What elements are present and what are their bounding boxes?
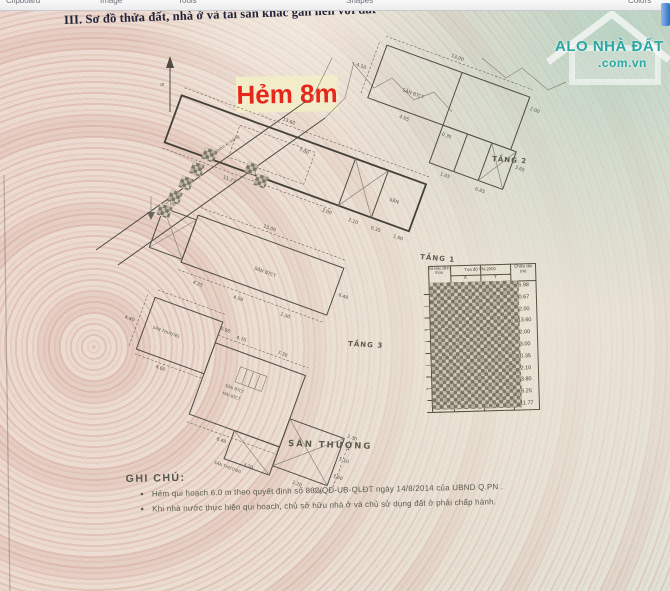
dimension-label: 3.65 <box>514 164 526 173</box>
censored-block <box>178 175 193 190</box>
length-value: 0.35 <box>512 351 538 364</box>
col-header-length-line2: (m) <box>510 269 536 275</box>
notes-section: GHI CHÚ: ● Hẻm qui hoạch 6.0 m theo quyế… <box>126 463 607 515</box>
censored-block <box>201 147 217 163</box>
dimension-label: 4.40 <box>124 314 136 323</box>
app-toolbar: Clipboard Image Tools Shapes Colors <box>0 0 670 11</box>
room-label: SÂN THƯỢNG <box>152 325 180 339</box>
tang2-label: TẦNG 2 <box>492 153 528 165</box>
censored-block <box>253 173 268 188</box>
dimension-label: 4.05 <box>398 114 410 123</box>
room-label: MÁI BTCT <box>222 390 242 401</box>
scan-canvas[interactable]: III. Sơ đồ thửa đất, nhà ở và tài sản kh… <box>0 10 670 591</box>
section-title: III. Sơ đồ thửa đất, nhà ở và tài sản kh… <box>64 10 377 28</box>
length-value: 3.00 <box>512 339 538 352</box>
bullet-icon: ● <box>140 505 144 515</box>
censored-coordinates-block <box>429 280 522 409</box>
dimension-label: 5.10 <box>338 456 350 465</box>
scan-edge-line <box>4 175 10 591</box>
dimension-label: 4.70 <box>235 335 247 344</box>
room-label: SÂN BTCT <box>224 383 245 395</box>
length-value: 2.00 <box>512 327 538 340</box>
length-value: 6.98 <box>510 280 536 293</box>
note-text: Hẻm qui hoạch 6.0 m theo quyết định số 8… <box>152 482 504 498</box>
dimension-label: 6.40 <box>337 292 349 301</box>
length-value: 2.10 <box>513 363 539 376</box>
censored-block <box>167 189 182 204</box>
col-header-length: Chiều dài (m) <box>510 264 536 274</box>
length-value: 0.67 <box>511 292 537 305</box>
toolbar-group-clipboard: Clipboard <box>6 0 40 5</box>
dimension-label: 7.00 <box>298 147 310 156</box>
watermark-domain-text: .com.vn <box>598 56 647 70</box>
alley-name-label: hẻm xi măng <box>216 133 241 152</box>
toolbar-group-tools: Tools <box>178 0 197 5</box>
censored-block <box>156 203 172 219</box>
toolbar-group-image: Image <box>100 0 122 5</box>
dimension-label: 6.65 <box>474 186 486 195</box>
room-label: SÂN BTCT <box>253 265 277 279</box>
dimension-label: 1.05 <box>439 171 451 180</box>
length-value: 11.77 <box>514 398 540 411</box>
alley-width-sticker: Hẻm 8m <box>236 75 339 113</box>
dimension-label: 2.30 <box>346 434 358 443</box>
tang1-label: TẦNG 1 <box>420 251 456 264</box>
length-value: 13.60 <box>511 315 537 328</box>
dimension-label: 4.50 <box>232 294 244 303</box>
dimension-label: 0.90 <box>219 326 231 335</box>
dimension-label: 4.50 <box>355 62 367 71</box>
san-thuong-label: SÂN THƯỢNG <box>288 437 373 452</box>
length-values: 6.98 0.67 2.00 13.60 2.00 3.00 0.35 2.10… <box>510 280 540 410</box>
length-value: 3.80 <box>513 374 539 387</box>
watermark: ALO NHÀ ĐẤT .com.vn <box>538 10 670 90</box>
watermark-brand-text: ALO NHÀ ĐẤT <box>555 38 664 55</box>
dimension-label: 4.25 <box>192 280 204 289</box>
toolbar-group-colors: Colors <box>628 0 651 5</box>
dimension-label: 4.60 <box>154 364 166 373</box>
room-label: SÂN BTCT <box>401 86 425 100</box>
col-header-point-id: Số hiệu đỉnh thửa <box>428 266 450 275</box>
dimension-label: 13.60 <box>282 116 296 126</box>
length-value: 2.00 <box>511 304 537 317</box>
toolbar-group-shapes: Shapes <box>346 0 373 5</box>
dimension-label: 2.00 <box>529 106 541 115</box>
dimension-label: 7.30 <box>277 350 289 359</box>
note-text: Khi nhà nước thực hiện qui hoạch, chủ sở… <box>152 497 496 513</box>
dimension-label: 3.00 <box>321 207 333 216</box>
dimension-label: 11.77 <box>222 175 236 185</box>
bullet-icon: ● <box>140 490 144 500</box>
dimension-label: 13.00 <box>450 53 464 63</box>
north-arrow: B <box>160 56 174 112</box>
censored-block <box>189 161 204 176</box>
dimension-label: 13.00 <box>262 223 276 233</box>
dimension-label: 2.10 <box>347 217 359 226</box>
length-value: 6.25 <box>513 386 539 399</box>
north-label: B <box>160 83 166 86</box>
dimension-label: 6.40 <box>215 436 227 445</box>
dimension-label: 0.35 <box>370 225 382 234</box>
dimension-label: 1.00 <box>392 233 404 242</box>
coordinate-table: Số hiệu đỉnh thửa Tọa độ VN-2000 X Y Chi… <box>428 263 540 413</box>
tang3-label: TẦNG 3 <box>348 338 384 350</box>
scrollbar-fragment[interactable] <box>661 3 670 26</box>
dimension-label: 0.35 <box>441 131 453 140</box>
tang3-plan: SÂN BTCT 13.00 4.25 4.50 6.40 2.00 2.30 <box>142 189 362 337</box>
room-label: SÂN <box>389 196 400 206</box>
tang2-plan: SÂN BTCT 13.00 4.50 2.00 3.65 1.05 0.35 … <box>329 24 554 206</box>
dimension-label: 2.30 <box>279 311 291 320</box>
